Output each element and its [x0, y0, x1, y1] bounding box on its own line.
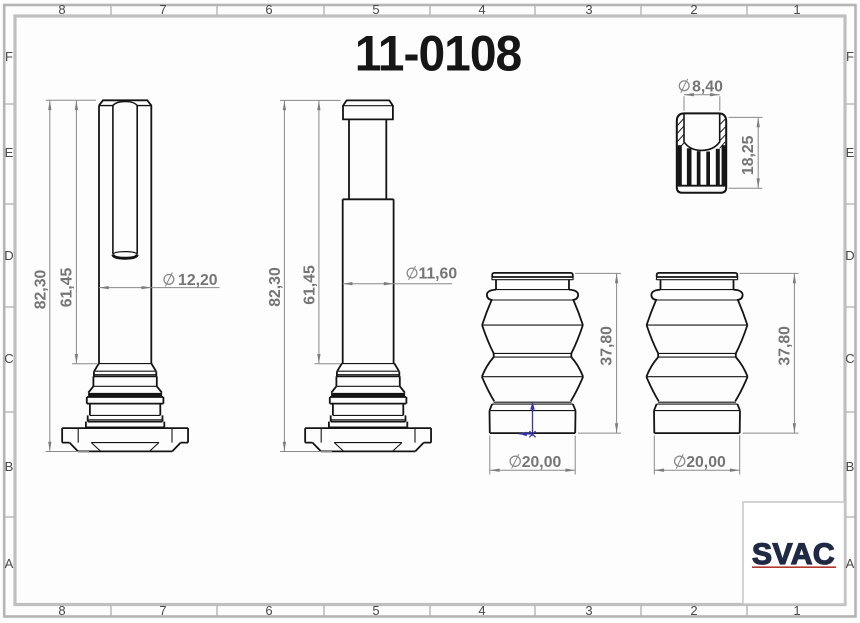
svg-text:1: 1: [793, 2, 800, 17]
svg-text:11-0108: 11-0108: [355, 25, 521, 81]
svg-text:B: B: [846, 459, 855, 474]
svg-text:2: 2: [690, 2, 697, 17]
svg-text:18,25: 18,25: [740, 135, 757, 175]
svg-text:82,30: 82,30: [267, 267, 284, 307]
svg-text:6: 6: [265, 603, 272, 618]
svg-text:4: 4: [478, 2, 485, 17]
svg-text:8: 8: [58, 2, 65, 17]
svg-text:3: 3: [585, 603, 592, 618]
svg-text:F: F: [846, 49, 854, 64]
svg-text:61,45: 61,45: [59, 268, 76, 308]
svg-text:37,80: 37,80: [776, 326, 793, 366]
svg-text:20,00: 20,00: [522, 454, 562, 471]
svg-text:3: 3: [585, 2, 592, 17]
svg-text:37,80: 37,80: [599, 326, 616, 366]
svg-text:7: 7: [159, 603, 166, 618]
svg-text:8: 8: [58, 603, 65, 618]
svg-text:4: 4: [478, 603, 485, 618]
svg-text:2: 2: [690, 603, 697, 618]
svg-text:8,40: 8,40: [692, 78, 723, 95]
svg-text:5: 5: [372, 2, 379, 17]
svg-text:20,00: 20,00: [686, 454, 726, 471]
svg-text:1: 1: [793, 603, 800, 618]
svg-text:C: C: [4, 351, 13, 366]
svg-text:D: D: [845, 248, 854, 263]
svg-text:82,30: 82,30: [32, 270, 49, 310]
svg-text:5: 5: [372, 603, 379, 618]
svg-text:SVAC: SVAC: [752, 538, 835, 571]
svg-text:11,60: 11,60: [418, 265, 457, 282]
svg-text:E: E: [5, 145, 14, 160]
svg-text:E: E: [846, 145, 855, 160]
svg-text:C: C: [845, 351, 854, 366]
svg-text:61,45: 61,45: [301, 265, 318, 305]
svg-text:A: A: [5, 556, 14, 571]
svg-text:7: 7: [159, 2, 166, 17]
svg-text:6: 6: [265, 2, 272, 17]
svg-text:D: D: [4, 248, 13, 263]
svg-text:B: B: [5, 459, 14, 474]
svg-text:A: A: [846, 556, 855, 571]
svg-text:F: F: [5, 49, 13, 64]
svg-text:12,20: 12,20: [178, 272, 218, 289]
